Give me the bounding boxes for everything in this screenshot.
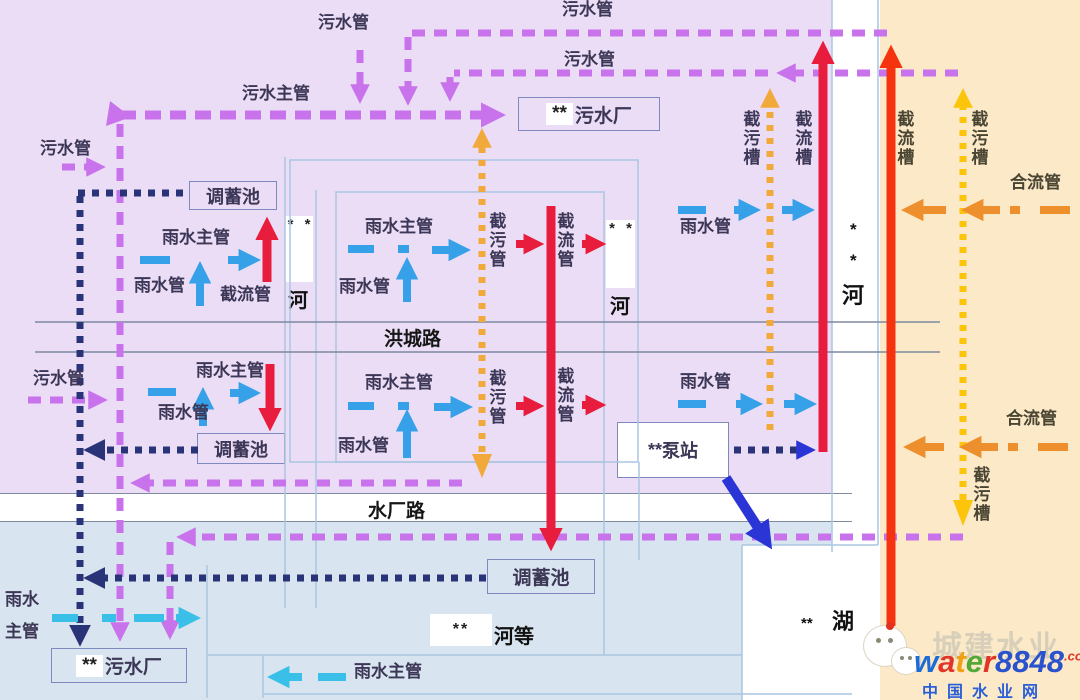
catchment-boundaries (207, 0, 878, 700)
pipe-label-trough-jl-left: 截流槽 (792, 110, 810, 167)
pipe-label-trough-jw-right: 截污槽 (968, 110, 986, 167)
watermark-letter: t (955, 644, 965, 679)
pipe-label-sewage-left-2: 污水管 (33, 370, 84, 388)
pipe-label-sewage-top-3: 污水管 (564, 51, 615, 69)
watermark-tagline: 中国水业网 (922, 678, 1047, 700)
watermark-letter: e (966, 644, 983, 679)
road-hongcheng-lines (35, 322, 940, 352)
watermark-letter: 8 (995, 644, 1012, 679)
drainage-system-diagram: 调蓄池 调蓄池 调蓄池 ** 污水厂 ** 污水厂 **泵站 * * 河 * *… (0, 0, 1080, 700)
pipe-label-storm-c2: 雨水管 (680, 373, 731, 391)
pipe-label-storm-main-left-2: 主管 (5, 623, 39, 641)
pipe-label-storm-main-a2: 雨水主管 (196, 362, 264, 380)
pipe-label-storm-main-left-1: 雨水 (5, 591, 39, 609)
wechat-eye (908, 656, 912, 660)
watermark-letter: 4 (1030, 644, 1047, 679)
trough-down-arrow (472, 454, 492, 478)
pump-outfall-arrow (726, 478, 766, 540)
pipe-label-storm-main-a1: 雨水主管 (162, 229, 230, 247)
pipe-label-trough-jw-right-bottom: 截污槽 (970, 466, 988, 523)
pipe-label-trough-jl-right: 截流槽 (894, 110, 912, 167)
pipe-label-storm-main-b1: 雨水主管 (365, 218, 433, 236)
pipe-label-combined-1: 合流管 (1010, 174, 1061, 192)
pipe-label-intercept-a1: 截流管 (220, 286, 271, 304)
storm-mains-bottom (52, 618, 346, 677)
pipe-network-canvas (0, 0, 1080, 700)
pipe-label-combined-2: 合流管 (1006, 410, 1057, 428)
pipe-label-storm-b2: 雨水管 (338, 437, 389, 455)
watermark: 城建水业 water8848.com 中国水业网 (858, 614, 1080, 700)
watermark-letter: r (983, 644, 995, 679)
watermark-letter: 8 (1047, 644, 1064, 679)
pipe-label-storm-a1: 雨水管 (134, 277, 185, 295)
pipe-label-storm-b1: 雨水管 (339, 278, 390, 296)
wechat-eye (876, 638, 881, 643)
watermark-site: water8848.com (914, 644, 1080, 680)
wechat-eye (900, 656, 904, 660)
storm-pipes (140, 210, 808, 458)
pipe-label-sewage-top-2: 污水管 (562, 1, 613, 19)
watermark-letter: w (914, 644, 938, 679)
wechat-red-dot (886, 622, 894, 630)
wechat-eye (888, 638, 893, 643)
road-label-shuichang: 水厂路 (368, 496, 425, 523)
watermark-letter: a (938, 644, 955, 679)
pipe-label-storm-a2: 雨水管 (158, 404, 209, 422)
road-label-hongcheng: 洪城路 (384, 324, 441, 351)
pipe-label-trough-jw-left: 截污槽 (740, 110, 758, 167)
pipe-label-sewage-main: 污水主管 (242, 85, 310, 103)
pipe-label-sewage-left-1: 污水管 (40, 140, 91, 158)
pipe-label-storm-main-b2: 雨水主管 (365, 374, 433, 392)
pipe-label-jwg-b1: 截污管 (486, 212, 504, 269)
pipe-label-storm-c1: 雨水管 (680, 218, 731, 236)
watermark-site-suffix: .com (1064, 649, 1080, 664)
interception-troughs-orange (482, 96, 770, 452)
pipe-label-jlg-b2: 截流管 (554, 367, 572, 424)
watermark-letter: 8 (1012, 644, 1029, 679)
pipe-label-jlg-b1: 截流管 (554, 212, 572, 269)
pipe-label-jwg-b2: 截污管 (486, 369, 504, 426)
pipe-label-sewage-top-1: 污水管 (318, 14, 369, 32)
pipe-label-storm-main-bottom: 雨水主管 (354, 663, 422, 681)
